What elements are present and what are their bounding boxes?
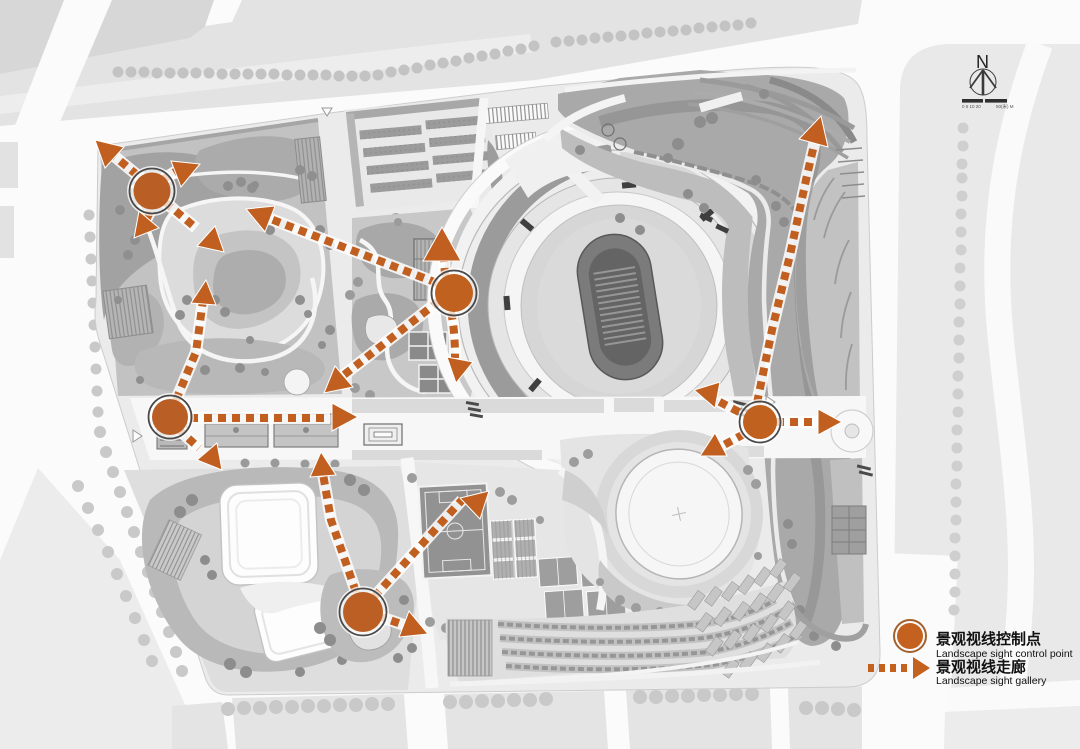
- svg-text:景观视线走廊: 景观视线走廊: [936, 658, 1026, 676]
- svg-text:50(米) M: 50(米) M: [996, 103, 1014, 110]
- svg-text:0 5 10 20: 0 5 10 20: [962, 104, 981, 109]
- svg-text:景观视线控制点: 景观视线控制点: [936, 630, 1041, 648]
- svg-text:Landscape sight gallery: Landscape sight gallery: [936, 675, 1047, 687]
